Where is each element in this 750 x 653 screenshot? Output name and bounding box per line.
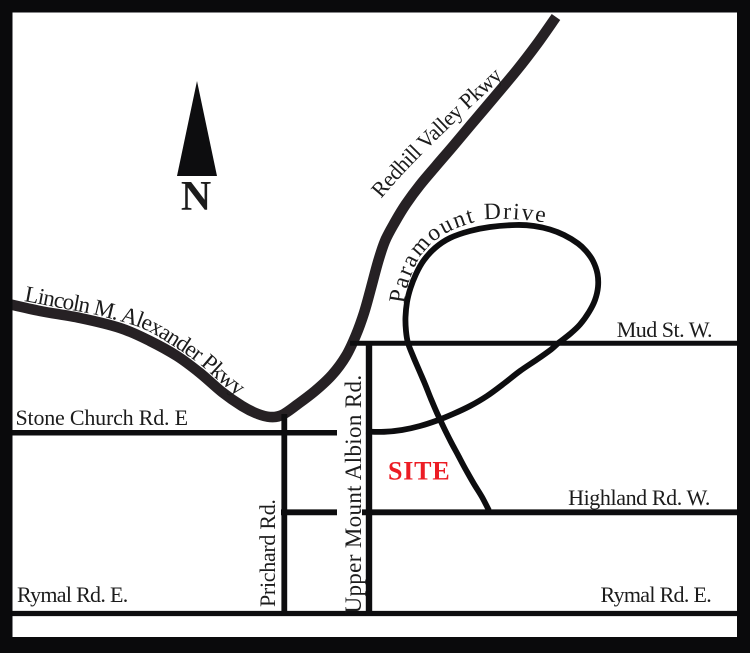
svg-text:Highland Rd. W.: Highland Rd. W. (568, 485, 710, 510)
svg-text:Rymal Rd. E.: Rymal Rd. E. (17, 582, 128, 607)
svg-text:Rymal Rd. E.: Rymal Rd. E. (601, 582, 712, 607)
svg-text:SITE: SITE (388, 457, 450, 486)
svg-text:Upper Mount Albion Rd.: Upper Mount Albion Rd. (341, 375, 366, 614)
svg-text:Stone Church Rd. E: Stone Church Rd. E (16, 405, 188, 430)
svg-text:Prichard Rd.: Prichard Rd. (255, 499, 280, 607)
svg-text:Mud St. W.: Mud St. W. (617, 317, 712, 342)
svg-text:N: N (181, 174, 211, 220)
